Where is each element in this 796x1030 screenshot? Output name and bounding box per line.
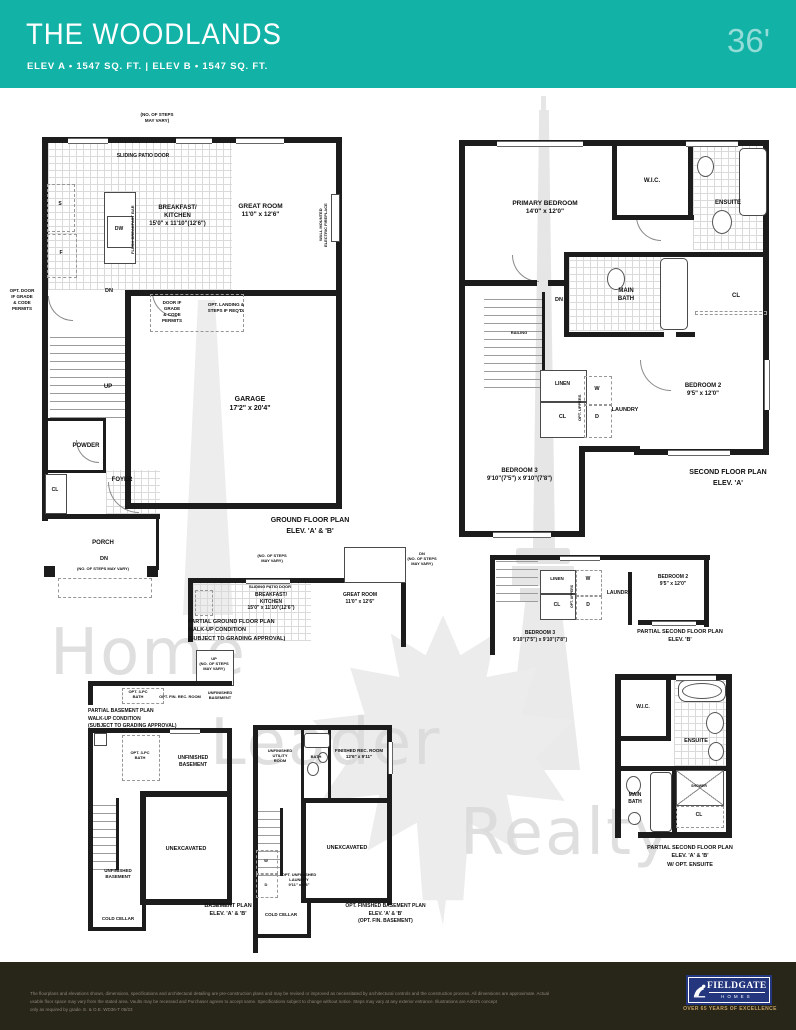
wall-segment xyxy=(88,900,92,930)
wall-segment xyxy=(676,332,695,337)
wall-segment xyxy=(579,446,640,452)
wall-segment xyxy=(666,680,671,740)
label-steps-note-pg: (NO. OF STEPS MAY VARY) xyxy=(240,553,304,563)
stairs xyxy=(496,558,538,602)
wall-segment xyxy=(88,927,146,931)
label-porch: PORCH xyxy=(78,540,128,548)
label-opt-uppers-psb: OPT. UPPERS xyxy=(570,574,577,618)
window xyxy=(493,532,551,538)
label-bedroom3: BEDROOM 3 9'10"(7'5") x 9'10"(7'8") xyxy=(462,468,577,484)
label-powder: POWDER xyxy=(62,443,110,451)
wall-segment xyxy=(88,728,93,927)
plan-graphic xyxy=(702,984,705,987)
fixture-box xyxy=(304,733,330,748)
dashed-outline xyxy=(695,311,767,315)
wall-segment xyxy=(48,470,106,473)
plan-graphic xyxy=(694,986,704,996)
logo-name: FIELDGATE xyxy=(707,981,767,991)
logo-tagline: OVER 65 YEARS OF EXCELLENCE xyxy=(672,1006,788,1012)
label-dn-porch: DN xyxy=(80,556,128,563)
label-cold-cellar-ob: COLD CELLAR xyxy=(255,912,307,918)
label-steps-note-top: (NO. OF STEPS MAY VARY) xyxy=(122,112,192,124)
wall-segment xyxy=(125,503,342,509)
label-w-ob: W xyxy=(258,858,274,863)
fixture-box xyxy=(331,194,340,242)
wall-segment xyxy=(490,555,710,560)
label-dn-second: DN xyxy=(546,297,572,304)
label-unexcavated-bsmt: UNEXCAVATED xyxy=(152,846,220,853)
label-unf-bsmt-upper: UNFINISHED BASEMENT xyxy=(168,755,218,768)
label-great-room: GREAT ROOM 11'0" x 12'6" xyxy=(218,203,303,220)
logo-divider xyxy=(709,992,765,993)
fixture-oval xyxy=(706,712,724,734)
fixture-oval xyxy=(307,762,319,776)
wall-segment xyxy=(620,736,671,741)
window xyxy=(497,141,583,147)
label-primary-bedroom: PRIMARY BEDROOM 14'0" x 12'0" xyxy=(485,200,605,217)
label-cl-second: CL xyxy=(716,293,756,301)
label-ensuite: ENSUITE xyxy=(700,200,756,208)
wall-segment xyxy=(620,766,678,771)
label-fireplace: WALL MOUNTED ELECTRIC FIREPLACE xyxy=(318,186,332,264)
wall-segment xyxy=(48,418,106,421)
label-w-psb: W xyxy=(582,576,594,583)
plan-graphic xyxy=(694,996,705,997)
label-unexcavated-ob: UNEXCAVATED xyxy=(312,845,382,852)
wall-segment xyxy=(253,725,392,730)
label-opt-landing: OPT. LANDING & STEPS IF REQ'D. xyxy=(196,302,256,314)
window xyxy=(236,138,284,144)
caption-second-floor-plan: SECOND FLOOR PLAN ELEV. 'A' xyxy=(676,468,780,489)
builder-icon xyxy=(692,983,707,998)
caption-partial-basement: PARTIAL BASEMENT PLAN WALK-UP CONDITION … xyxy=(88,708,188,731)
label-sliding-patio-door: SLIDING PATIO DOOR xyxy=(98,153,188,160)
label-sliding-pg: SLIDING PATIO DOOR xyxy=(230,584,310,589)
dashed-outline xyxy=(195,590,213,616)
label-cold-cellar-bsmt: COLD CELLAR xyxy=(92,916,144,922)
fixture-box xyxy=(94,733,107,746)
window xyxy=(686,141,738,147)
watermark-tower-band xyxy=(183,300,233,615)
label-shower-pe: SHOWER xyxy=(678,784,720,789)
fixture-oval xyxy=(697,156,714,177)
label-dn-kitchen: DN xyxy=(96,288,122,295)
floorplan-page: Home Leader Realty THE WOODLANDS ELEV A … xyxy=(0,0,796,1030)
label-cl-foyer: CL xyxy=(46,487,64,494)
label-breakfast-kitchen-pg: BREAKFAST/ KITCHEN 15'0" x 11'10"(12'6") xyxy=(240,592,302,612)
label-wic: W.I.C. xyxy=(628,178,676,186)
wall-segment xyxy=(628,572,632,625)
label-dryer: D xyxy=(590,414,604,421)
label-opt-uppers: OPT. UPPERS xyxy=(577,382,585,434)
wall-segment xyxy=(227,728,232,905)
label-breakfast-kitchen: BREAKFAST/ KITCHEN 15'0" x 11'10"(12'6") xyxy=(135,205,220,228)
page-title: THE WOODLANDS xyxy=(26,18,282,52)
label-opt-bath-bsmt: OPT. 3-PC BATH xyxy=(121,750,159,760)
wall-segment xyxy=(401,575,406,647)
label-bath-ob: BATH xyxy=(304,754,328,759)
wall-segment xyxy=(156,514,159,570)
label-dw: DW xyxy=(107,226,131,233)
door-swing-arc xyxy=(48,296,73,321)
wall-segment xyxy=(612,215,694,220)
caption-ground-floor-plan: GROUND FLOOR PLAN ELEV. 'A' & 'B' xyxy=(255,516,365,537)
label-opt-door: OPT. DOOR IF GRADE & CODE PERMITS xyxy=(2,288,42,311)
dashed-outline xyxy=(47,184,75,232)
label-opt-bath-pb: OPT. 3-PC BATH xyxy=(120,689,156,699)
label-opt-rec-pb: OPT. FIN. REC. ROOM xyxy=(158,694,202,699)
fixture-box xyxy=(650,772,672,832)
label-up-steps-pb: UP (NO. OF STEPS MAY VARY) xyxy=(196,656,232,672)
window xyxy=(176,138,212,144)
footer-bar: The floorplans and elevations shown, dim… xyxy=(0,962,796,1030)
label-up: UP xyxy=(96,384,120,392)
fieldgate-logo: FIELDGATE HOMES xyxy=(688,977,770,1003)
label-s-pantry: S xyxy=(47,201,73,208)
label-garage: GARAGE 17'2" x 20'4" xyxy=(200,395,300,413)
label-dn-steps-pg: DN (NO. OF STEPS MAY VARY) xyxy=(398,551,446,567)
label-main-bath: MAIN BATH xyxy=(600,288,652,304)
label-d-ob: D xyxy=(258,882,274,887)
label-great-room-pg: GREAT ROOM 11'0" x 12'6" xyxy=(330,592,390,605)
wall-segment xyxy=(548,280,564,286)
window xyxy=(68,138,108,144)
label-rec-room: FINISHED REC. ROOM 12'6" x 9'11" xyxy=(330,748,388,760)
fixture-oval xyxy=(682,683,722,699)
wall-segment xyxy=(638,832,732,838)
window xyxy=(560,556,600,561)
window xyxy=(676,675,716,681)
wall-segment xyxy=(88,681,232,686)
dashed-outline xyxy=(58,578,152,598)
label-railing: RAILING xyxy=(504,330,534,335)
label-linen-psb: LINEN xyxy=(541,576,573,582)
label-cl-pe: CL xyxy=(688,812,710,819)
disclaimer-text: The floorplans and elevations shown, dim… xyxy=(30,990,650,1014)
wall-segment xyxy=(612,146,617,220)
wall-segment xyxy=(579,446,585,537)
label-opt-laundry: OPT. UNFINISHED LAUNDRY 9'11" x 8'8" xyxy=(278,872,320,888)
door-swing-arc xyxy=(512,255,539,282)
wall-segment xyxy=(688,146,693,220)
fixture-oval xyxy=(628,812,641,825)
window xyxy=(388,742,393,774)
window xyxy=(764,360,770,410)
label-d-psb: D xyxy=(582,602,594,609)
wall-segment xyxy=(142,900,146,930)
wall-segment xyxy=(140,791,232,797)
label-washer: W xyxy=(590,386,604,393)
stairs xyxy=(92,798,116,870)
wall-segment xyxy=(726,674,732,838)
window xyxy=(668,450,730,456)
label-door-if-grade: DOOR IF GRADE & CODE PERMITS xyxy=(152,300,192,323)
elevation-subtitle: ELEV A • 1547 SQ. FT. | ELEV B • 1547 SQ… xyxy=(27,61,268,72)
label-laundry: LAUNDRY xyxy=(600,407,650,414)
wall-segment xyxy=(336,137,342,509)
wall-segment xyxy=(88,681,93,705)
wall-segment xyxy=(280,808,283,876)
label-laundry-psb: LAUNDRY xyxy=(596,590,642,597)
label-utility: UNFINISHED UTILITY ROOM xyxy=(258,748,302,764)
label-cl-psb: CL xyxy=(541,602,573,609)
wall-segment xyxy=(615,674,621,838)
label-unf-bsmt-lower: UNFINISHED BASEMENT xyxy=(96,868,140,880)
wall-segment xyxy=(116,798,119,870)
wall-segment xyxy=(704,555,709,627)
logo-sub: HOMES xyxy=(707,994,767,999)
wall-segment xyxy=(564,252,569,337)
wall-segment xyxy=(253,934,311,938)
label-ensuite-pe: ENSUITE xyxy=(670,738,722,745)
fixture-box xyxy=(344,547,406,583)
plan-graphic: FIELDGATE HOMES xyxy=(707,981,767,1000)
lot-frontage: 36' xyxy=(727,22,770,60)
wall-segment xyxy=(459,280,537,286)
fixture-box xyxy=(45,474,67,514)
wall-segment xyxy=(307,900,311,938)
label-f-fridge: F xyxy=(47,250,75,257)
header-bar: THE WOODLANDS ELEV A • 1547 SQ. FT. | EL… xyxy=(0,0,796,88)
wall-segment xyxy=(140,791,146,905)
fixture-box xyxy=(660,258,688,330)
stairs xyxy=(50,336,126,418)
fixture-oval xyxy=(607,268,625,290)
window xyxy=(652,621,696,626)
wall-segment xyxy=(564,252,769,257)
caption-partial-ensuite: PARTIAL SECOND FLOOR PLAN ELEV. 'A' & 'B… xyxy=(636,844,744,869)
caption-basement-plan: BASEMENT PLAN ELEV. 'A' & 'B' xyxy=(192,902,264,919)
wall-segment xyxy=(301,798,392,803)
wall-segment xyxy=(564,332,664,337)
label-unf-bsmt-pb: UNFINISHED BASEMENT xyxy=(200,690,240,700)
label-bedroom2-psb: BEDROOM 2 9'5" x 12'0" xyxy=(638,574,708,587)
wall-segment xyxy=(42,514,160,519)
stairs xyxy=(484,292,542,388)
caption-opt-basement: OPT. FINISHED BASEMENT PLAN ELEV. 'A' & … xyxy=(338,903,433,926)
fixture-oval xyxy=(712,210,732,234)
caption-partial-second-b: PARTIAL SECOND FLOOR PLAN ELEV. 'B' xyxy=(630,628,730,645)
label-flush-breakfast-bar: FLUSH BREAKFAST BAR xyxy=(130,190,138,270)
label-bedroom3-psb: BEDROOM 3 9'10"(7'5") x 9'10"(7'8") xyxy=(495,630,585,643)
label-bedroom2: BEDROOM 2 9'5" x 12'0" xyxy=(660,383,746,399)
caption-partial-ground: PARTIAL GROUND FLOOR PLAN WALK-UP CONDIT… xyxy=(188,618,298,643)
label-wic-pe: W.I.C. xyxy=(621,704,665,711)
label-main-bath-pe: MAIN BATH xyxy=(618,792,652,805)
label-foyer: FOYER xyxy=(100,477,144,485)
label-steps-note-porch: (NO. OF STEPS MAY VARY) xyxy=(48,566,158,571)
